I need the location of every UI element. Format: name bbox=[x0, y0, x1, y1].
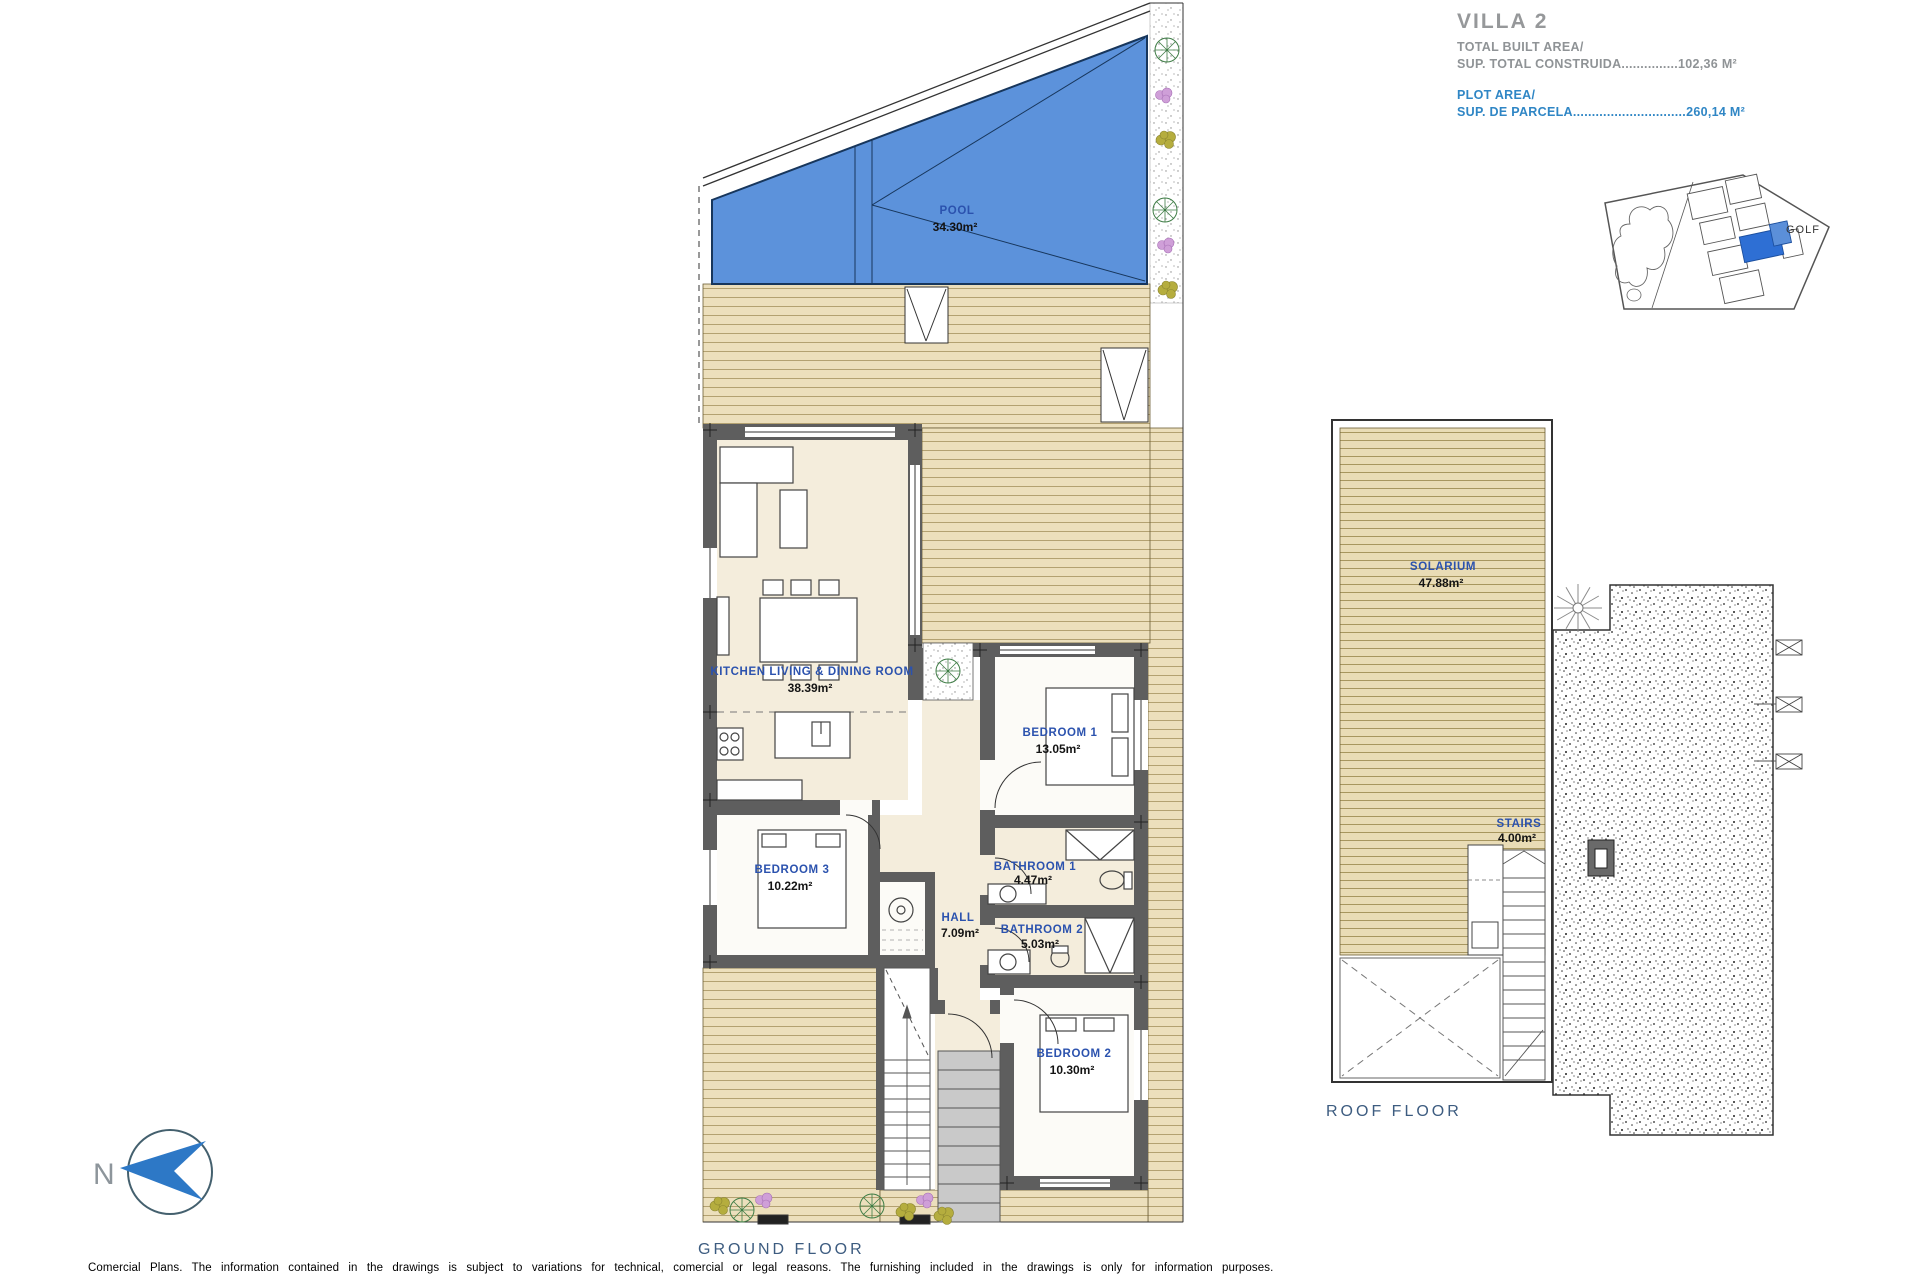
north-compass: N bbox=[85, 1085, 255, 1260]
built-area-line: SUP. TOTAL CONSTRUIDA...............102,… bbox=[1457, 56, 1817, 73]
bathroom2-label: BATHROOM 2 bbox=[1001, 924, 1083, 936]
title-block: VILLA 2 TOTAL BUILT AREA/ SUP. TOTAL CON… bbox=[1457, 10, 1817, 120]
gravel-roof bbox=[1553, 585, 1773, 1135]
built-area-label-en: TOTAL BUILT AREA/ bbox=[1457, 39, 1817, 56]
pool-label: POOL bbox=[940, 205, 975, 217]
plot-area-leader: .............................. bbox=[1573, 105, 1686, 119]
ground-floor-plan: POOL 34.30m² KITCHEN LIVING & DINING ROO… bbox=[690, 0, 1200, 1240]
solarium-label: SOLARIUM bbox=[1410, 561, 1476, 573]
villa-title: VILLA 2 bbox=[1457, 10, 1817, 34]
north-label: N bbox=[93, 1158, 115, 1191]
roof-kitchenette bbox=[1468, 845, 1503, 955]
tree-icon bbox=[1155, 38, 1179, 62]
pool-area bbox=[712, 36, 1147, 284]
entrance-steps bbox=[938, 1051, 1000, 1222]
bedroom2-label: BEDROOM 2 bbox=[1036, 1048, 1111, 1060]
built-area-leader: ............... bbox=[1621, 57, 1678, 71]
disclaimer-text: Comercial Plans. The information contain… bbox=[88, 1262, 1273, 1274]
bathroom1-label: BATHROOM 1 bbox=[994, 861, 1076, 873]
bedroom3-label: BEDROOM 3 bbox=[754, 864, 829, 876]
plot-area-label-es: SUP. DE PARCELA bbox=[1457, 105, 1573, 119]
roof-floor-caption: ROOF FLOOR bbox=[1326, 1103, 1462, 1121]
plot-area-line: SUP. DE PARCELA.........................… bbox=[1457, 104, 1817, 121]
plant-icon bbox=[1554, 584, 1602, 632]
bedroom1-label: BEDROOM 1 bbox=[1022, 727, 1097, 739]
kitchen-label: KITCHEN LIVING & DINING ROOM bbox=[710, 666, 913, 678]
bathroom1-area: 4.47m² bbox=[1014, 873, 1052, 887]
plot-area-value: 260,14 M² bbox=[1686, 105, 1745, 119]
hall-label: HALL bbox=[941, 912, 974, 924]
tree-icon bbox=[730, 1198, 754, 1222]
kitchen-area: 38.39m² bbox=[788, 681, 833, 695]
roof-staircase bbox=[1503, 850, 1545, 1080]
built-area-label-es: SUP. TOTAL CONSTRUIDA bbox=[1457, 57, 1621, 71]
roof-floor-plan: SOLARIUM 47.88m² STAIRS 4.00m² bbox=[1320, 410, 1810, 1150]
built-area-value: 102,36 M² bbox=[1678, 57, 1737, 71]
stairs-label: STAIRS bbox=[1497, 818, 1542, 830]
plot-area-label-en: PLOT AREA/ bbox=[1457, 87, 1817, 104]
tree-icon bbox=[1153, 198, 1177, 222]
chimney bbox=[1588, 840, 1614, 876]
roof-void bbox=[1340, 958, 1500, 1078]
site-key-plan: GOLF bbox=[1590, 162, 1840, 322]
solarium-area: 47.88m² bbox=[1419, 576, 1464, 590]
tree-icon bbox=[936, 659, 960, 683]
golf-label: GOLF bbox=[1786, 224, 1820, 236]
bathroom2-area: 5.03m² bbox=[1021, 937, 1059, 951]
bedroom1-area: 13.05m² bbox=[1036, 742, 1081, 756]
bedroom2-area: 10.30m² bbox=[1050, 1063, 1095, 1077]
pool-area: 34.30m² bbox=[933, 220, 978, 234]
hall-area: 7.09m² bbox=[941, 926, 979, 940]
ground-floor-caption: GROUND FLOOR bbox=[698, 1241, 865, 1259]
bedroom3-area: 10.22m² bbox=[768, 879, 813, 893]
stairs-area: 4.00m² bbox=[1498, 831, 1536, 845]
tree-icon bbox=[860, 1194, 884, 1218]
